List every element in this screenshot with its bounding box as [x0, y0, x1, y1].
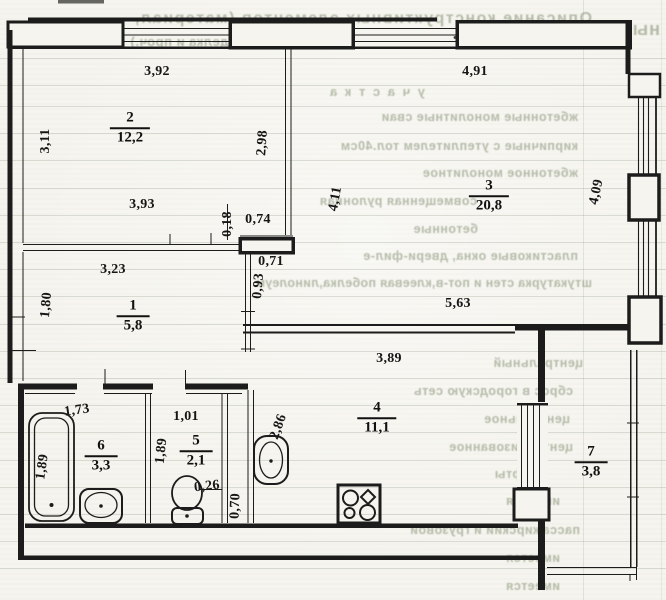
room-area: 20,8 — [469, 195, 509, 214]
room-area: 3,8 — [575, 461, 608, 480]
room-label: 212,2 — [110, 110, 150, 146]
dimension-label: 1,01 — [173, 409, 199, 425]
dimension-label: 4,11 — [326, 185, 346, 212]
dimension-label: 0,26 — [193, 478, 220, 497]
room-number: 6 — [85, 438, 118, 455]
dimension-label: 3,11 — [38, 129, 54, 154]
dimension-label: 1,89 — [153, 437, 172, 464]
dimension-label: 3,23 — [100, 262, 126, 278]
dimension-label: 4,91 — [462, 64, 488, 80]
dimension-label: 1,80 — [38, 292, 56, 319]
dimension-label: 0,70 — [228, 493, 245, 519]
room-label: 320,8 — [469, 178, 509, 214]
room-label: 52,1 — [180, 433, 213, 469]
room-area: 2,1 — [180, 450, 213, 469]
dimension-label: 2,86 — [267, 412, 291, 442]
room-number: 3 — [469, 178, 509, 195]
dimension-label: 0,18 — [220, 211, 236, 237]
dimension-label: 2,98 — [254, 130, 272, 157]
room-area: 3,3 — [85, 455, 118, 474]
room-area: 5,8 — [117, 315, 150, 334]
room-number: 1 — [117, 298, 150, 315]
dimension-label: 1,89 — [33, 453, 52, 481]
room-label: 411,1 — [357, 400, 396, 436]
dimension-label: 4,09 — [587, 178, 608, 206]
dimension-label: 0,71 — [258, 254, 284, 270]
plan-labels-layer: 212,2320,815,8411,163,352,173,83,924,913… — [0, 0, 666, 600]
dimension-label: 3,89 — [376, 351, 402, 367]
dimension-label: 0,93 — [250, 273, 268, 300]
dimension-label: 3,93 — [129, 197, 155, 213]
dimension-label: 5,63 — [445, 296, 471, 312]
room-number: 4 — [357, 400, 396, 417]
room-number: 5 — [180, 433, 213, 450]
room-area: 11,1 — [357, 417, 396, 436]
room-area: 12,2 — [110, 127, 150, 146]
room-number: 2 — [110, 110, 150, 127]
room-label: 63,3 — [85, 438, 118, 474]
dimension-label: 3,92 — [144, 64, 170, 80]
dimension-label: 0,74 — [245, 212, 271, 228]
room-label: 15,8 — [117, 298, 150, 334]
scanned-floor-plan-page: Описание конструктивных элементов (матер… — [0, 0, 666, 600]
room-number: 7 — [575, 444, 608, 461]
room-label: 73,8 — [575, 444, 608, 480]
dimension-label: 1,73 — [63, 401, 91, 420]
